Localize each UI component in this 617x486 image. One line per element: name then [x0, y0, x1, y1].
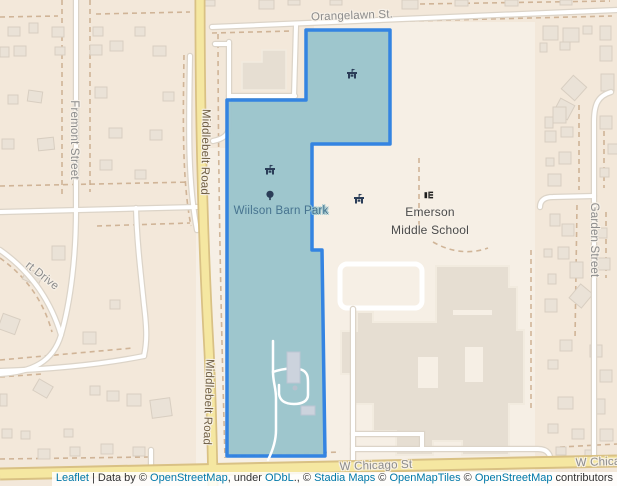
building-house [2, 429, 12, 438]
school-glyph-bar [425, 192, 428, 198]
attribution-text: © [375, 472, 389, 484]
picnic-leg [266, 170, 268, 175]
picnic-leg [348, 74, 350, 79]
building-house [600, 370, 612, 382]
building-house [205, 0, 215, 6]
building-house [64, 429, 73, 437]
building-house [600, 46, 612, 61]
attribution-link-openmaptiles[interactable]: OpenMapTiles [389, 472, 460, 484]
picnic-leg [272, 170, 274, 175]
building-house [560, 0, 572, 5]
building-house [101, 444, 113, 454]
building-house [556, 447, 566, 455]
building-house [8, 27, 20, 36]
picnic-roof [354, 197, 364, 199]
building-house [505, 0, 518, 6]
building-house [107, 391, 119, 401]
building-house [572, 429, 584, 439]
school-courtyard [418, 357, 438, 388]
school-courtyard [453, 310, 492, 315]
map-tile-layer [0, 0, 617, 486]
attribution-text: contributors [552, 472, 613, 484]
building-house [29, 23, 38, 33]
building-barn [301, 406, 315, 415]
school-glyph-line [430, 192, 433, 194]
building-house [8, 95, 18, 104]
building-house [90, 45, 102, 55]
building-house [52, 27, 64, 37]
building-house [135, 170, 146, 179]
building-house [583, 26, 592, 34]
building-house [150, 398, 172, 419]
building-house [600, 168, 609, 177]
attribution-text: | Data by © [89, 472, 150, 484]
building-house [600, 116, 612, 129]
building-house [553, 107, 566, 123]
building-house [563, 28, 579, 42]
building-house [545, 131, 556, 142]
attribution-link-odbl[interactable]: ODbL [265, 472, 294, 484]
building-house [608, 144, 617, 154]
building-house [540, 43, 547, 52]
building-house [601, 74, 614, 91]
fence-line [433, 242, 488, 252]
picnic-leg [355, 199, 357, 204]
building-house [562, 224, 574, 236]
building-house [559, 152, 571, 164]
attribution-text: © [461, 472, 475, 484]
building-house [548, 360, 558, 369]
school-glyph-line [430, 194, 433, 196]
picnic-leg [361, 199, 363, 204]
picnic-roof [265, 168, 275, 170]
building-house [545, 117, 553, 128]
building-house [163, 92, 174, 101]
building-house [548, 174, 561, 186]
building-house [544, 249, 552, 257]
building-house [0, 394, 7, 406]
flag [359, 194, 362, 196]
picnic-table [351, 75, 354, 77]
building-house [548, 274, 556, 284]
building-house [288, 0, 300, 5]
building-house [70, 447, 80, 456]
building-house [598, 228, 607, 238]
building-house [110, 41, 123, 51]
building-house [558, 247, 569, 259]
building-house [259, 0, 274, 9]
building-house [570, 262, 583, 278]
building-house [27, 90, 42, 103]
building-house [550, 214, 560, 226]
building-house [38, 449, 50, 459]
building-house [135, 27, 145, 36]
attribution-text: , under [228, 472, 265, 484]
map-canvas[interactable]: Orangelawn St.Fremont StreetMiddlebelt R… [0, 0, 617, 486]
tree-trunk [269, 197, 271, 201]
attribution-link-leaflet[interactable]: Leaflet [56, 472, 89, 484]
picnic-table [269, 171, 272, 173]
building-house [109, 128, 122, 138]
building-house [546, 158, 554, 166]
building-house [153, 46, 166, 56]
picnic-shelter-icon [354, 194, 364, 204]
building-house [93, 27, 103, 36]
building-house [598, 258, 610, 270]
building-house [110, 300, 120, 309]
attribution-link-openstreetmap[interactable]: OpenStreetMap [150, 472, 228, 484]
map-attribution: Leaflet | Data by © OpenStreetMap, under… [52, 472, 617, 486]
building-house [561, 127, 573, 137]
building-house [2, 139, 14, 149]
building-house [600, 26, 611, 40]
school-glyph-line [430, 197, 433, 199]
road-minor [294, 26, 296, 96]
building-house [133, 447, 145, 456]
building-house [127, 394, 141, 406]
building-house [52, 246, 65, 260]
track-loop [340, 264, 422, 308]
school-courtyard [465, 347, 483, 382]
building-house [83, 332, 96, 344]
building-house [37, 137, 54, 151]
attribution-link-openstreetmap-2[interactable]: OpenStreetMap [475, 472, 553, 484]
building-house [543, 26, 558, 40]
school-icon [425, 192, 434, 199]
building-house [90, 386, 100, 395]
building-house [95, 87, 107, 98]
building-house [548, 424, 558, 433]
building-house [560, 42, 570, 50]
picnic-roof [347, 72, 357, 74]
building-house [0, 47, 9, 57]
building-house [100, 160, 112, 170]
building-house [21, 431, 30, 439]
building-house [55, 47, 65, 55]
building-house [455, 0, 468, 6]
building-house [14, 46, 26, 56]
building-house [558, 397, 573, 409]
building-house [150, 130, 162, 140]
building-house [560, 340, 572, 351]
attribution-text: ., © [294, 472, 314, 484]
building-house [545, 299, 557, 312]
building-barn [287, 352, 300, 383]
attribution-link-stadia-maps[interactable]: Stadia Maps [314, 472, 375, 484]
picnic-leg [354, 74, 356, 79]
park-feature-dot [293, 386, 298, 391]
building-house [330, 0, 342, 5]
building-house [402, 0, 418, 9]
picnic-table [358, 200, 361, 202]
school-glyph-spine [428, 192, 429, 199]
building-house [600, 429, 613, 441]
